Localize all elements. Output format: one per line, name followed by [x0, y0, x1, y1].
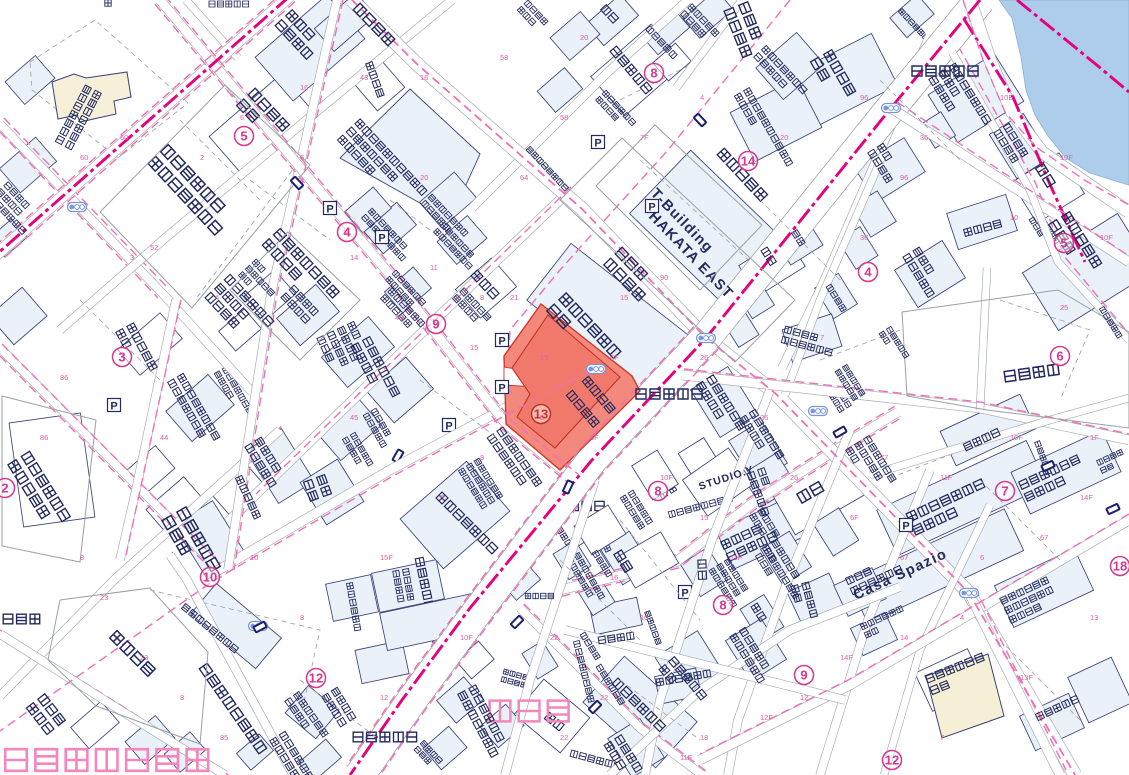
svg-text:10: 10: [1010, 213, 1018, 222]
svg-text:22: 22: [600, 693, 608, 702]
svg-text:22: 22: [550, 633, 558, 642]
svg-text:8: 8: [540, 413, 544, 422]
svg-text:45: 45: [350, 413, 358, 422]
svg-text:2: 2: [200, 153, 204, 162]
svg-text:8: 8: [650, 66, 657, 81]
svg-text:8: 8: [654, 484, 661, 499]
svg-text:10F: 10F: [660, 473, 673, 482]
svg-text:25: 25: [1060, 303, 1068, 312]
svg-text:18: 18: [1113, 559, 1127, 574]
svg-text:8: 8: [300, 613, 304, 622]
svg-text:7: 7: [820, 333, 824, 342]
svg-text:40: 40: [395, 313, 403, 322]
svg-text:86: 86: [60, 373, 68, 382]
svg-text:P: P: [648, 201, 655, 213]
svg-text:3: 3: [130, 253, 134, 262]
svg-text:16: 16: [610, 573, 618, 582]
svg-text:14F: 14F: [840, 653, 853, 662]
svg-text:36: 36: [860, 233, 868, 242]
svg-text:16: 16: [300, 83, 308, 92]
svg-text:10F: 10F: [1060, 153, 1073, 162]
svg-text:26: 26: [760, 413, 768, 422]
svg-text:60: 60: [120, 133, 128, 142]
svg-text:5: 5: [1060, 236, 1067, 251]
svg-text:15: 15: [700, 513, 708, 522]
svg-text:6F: 6F: [610, 353, 619, 362]
svg-text:6: 6: [980, 553, 984, 562]
svg-text:15: 15: [470, 343, 478, 352]
svg-text:7: 7: [1001, 484, 1008, 499]
svg-text:21: 21: [510, 293, 518, 302]
svg-text:P: P: [594, 137, 601, 149]
svg-text:9: 9: [432, 317, 439, 332]
svg-text:11F: 11F: [940, 473, 953, 482]
svg-text:11F: 11F: [730, 553, 743, 562]
svg-text:P: P: [110, 400, 117, 412]
svg-text:4: 4: [215, 293, 219, 302]
svg-text:11F: 11F: [680, 753, 693, 762]
svg-text:14F: 14F: [1080, 493, 1093, 502]
svg-text:P: P: [378, 232, 385, 244]
svg-text:10: 10: [640, 613, 648, 622]
svg-text:12: 12: [800, 693, 808, 702]
svg-text:26: 26: [790, 473, 798, 482]
svg-text:96: 96: [900, 173, 908, 182]
svg-text:7: 7: [940, 733, 944, 742]
svg-text:10: 10: [250, 553, 258, 562]
svg-text:60: 60: [80, 153, 88, 162]
svg-text:20: 20: [420, 173, 428, 182]
svg-text:P: P: [445, 420, 452, 432]
svg-text:85: 85: [220, 733, 228, 742]
svg-text:10F: 10F: [1010, 433, 1023, 442]
svg-text:86: 86: [40, 433, 48, 442]
svg-text:6: 6: [240, 113, 244, 122]
svg-text:4: 4: [960, 613, 964, 622]
svg-text:10E: 10E: [1000, 93, 1013, 102]
svg-text:14: 14: [741, 154, 756, 169]
svg-text:15: 15: [620, 293, 628, 302]
svg-text:22: 22: [560, 733, 568, 742]
svg-text:10F: 10F: [460, 633, 473, 642]
svg-text:12: 12: [885, 753, 899, 768]
svg-text:4: 4: [700, 93, 704, 102]
svg-text:14: 14: [900, 633, 908, 642]
svg-text:4: 4: [343, 225, 351, 240]
svg-text:12: 12: [380, 693, 388, 702]
svg-text:P: P: [498, 382, 505, 394]
svg-text:9: 9: [440, 493, 444, 502]
svg-text:20: 20: [580, 33, 588, 42]
svg-text:15: 15: [540, 353, 548, 362]
svg-text:13: 13: [1090, 613, 1098, 622]
svg-text:9: 9: [800, 668, 807, 683]
svg-text:23: 23: [100, 593, 108, 602]
svg-text:13F: 13F: [1020, 673, 1033, 682]
svg-text:58: 58: [500, 53, 508, 62]
svg-text:16: 16: [420, 73, 428, 82]
svg-text:5: 5: [240, 129, 247, 144]
svg-text:15F: 15F: [380, 553, 393, 562]
svg-text:P: P: [498, 335, 505, 347]
svg-text:26: 26: [700, 353, 708, 362]
svg-text:10: 10: [203, 570, 217, 585]
svg-text:1F: 1F: [1090, 433, 1099, 442]
svg-text:20: 20: [780, 133, 788, 142]
svg-text:58: 58: [560, 113, 568, 122]
svg-text:8: 8: [719, 598, 726, 613]
svg-text:44: 44: [160, 433, 168, 442]
svg-text:36: 36: [920, 133, 928, 142]
svg-text:4: 4: [864, 265, 872, 280]
svg-text:7F: 7F: [640, 133, 649, 142]
svg-text:12: 12: [309, 671, 323, 686]
svg-text:6F: 6F: [590, 433, 599, 442]
svg-text:23: 23: [140, 653, 148, 662]
svg-text:6: 6: [1056, 349, 1063, 364]
svg-text:67: 67: [1040, 533, 1048, 542]
svg-text:2: 2: [1, 481, 8, 496]
svg-text:64: 64: [520, 173, 528, 182]
svg-text:6: 6: [300, 153, 304, 162]
svg-text:3: 3: [118, 350, 125, 365]
svg-text:8: 8: [480, 453, 484, 462]
svg-text:14: 14: [350, 253, 358, 262]
svg-text:11: 11: [430, 263, 438, 272]
svg-text:P: P: [326, 203, 333, 215]
svg-text:90: 90: [660, 273, 668, 282]
svg-text:8: 8: [480, 293, 484, 302]
svg-text:96: 96: [860, 93, 868, 102]
svg-text:18: 18: [700, 733, 708, 742]
svg-text:43: 43: [360, 73, 368, 82]
svg-text:12F: 12F: [760, 713, 773, 722]
svg-text:8: 8: [180, 693, 184, 702]
svg-text:8: 8: [80, 553, 84, 562]
svg-text:10F: 10F: [1100, 233, 1113, 242]
svg-text:P: P: [902, 520, 909, 532]
svg-text:52: 52: [150, 243, 158, 252]
svg-text:67: 67: [900, 553, 908, 562]
svg-text:77: 77: [880, 453, 888, 462]
svg-text:6F: 6F: [850, 513, 859, 522]
